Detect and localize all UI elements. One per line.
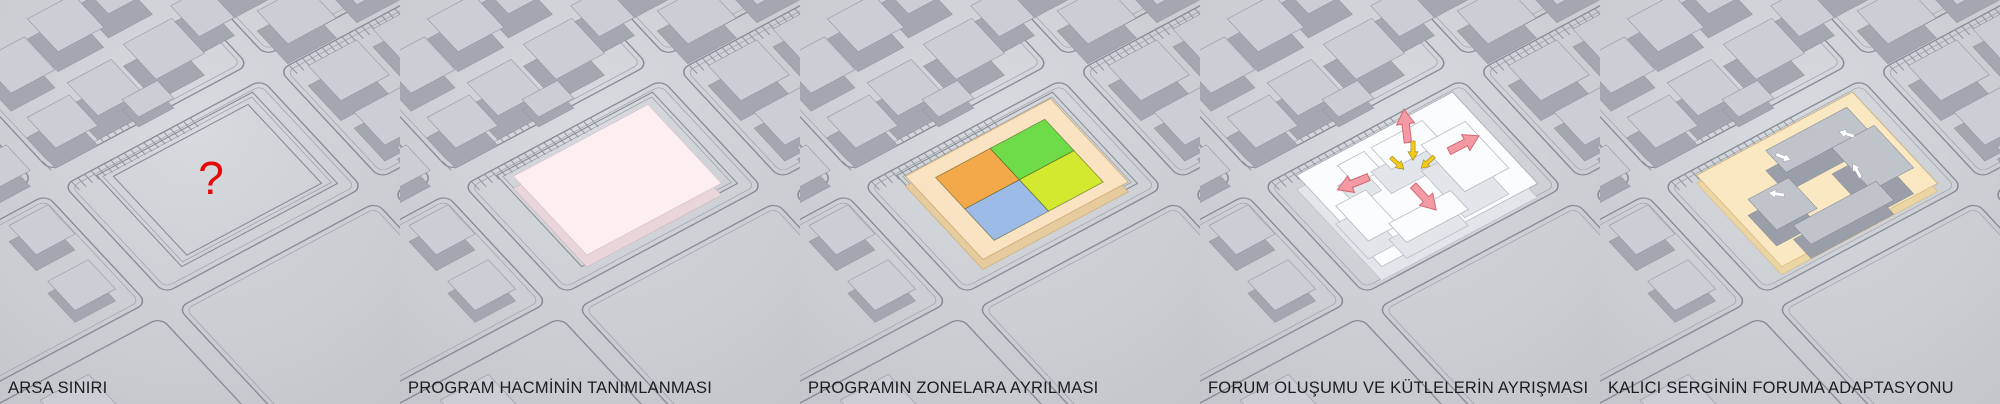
panel-1-scene: ? xyxy=(0,0,400,404)
step-label: KALICI SERGİNİN FORUMA ADAPTASYONU xyxy=(1608,379,1954,397)
concept-diagram-strip: ? ARSA SINIRI PROGRAM HACMİNİN TANIMLANM… xyxy=(0,0,2000,404)
step-panel-site-boundary: ? ARSA SINIRI xyxy=(0,0,400,404)
panel-5-scene xyxy=(1600,0,2000,404)
panel-2-scene xyxy=(400,0,800,404)
step-label: PROGRAMIN ZONELARA AYRILMASI xyxy=(808,379,1098,397)
step-label: ARSA SINIRI xyxy=(8,379,107,397)
step-panel-forum-separation: FORUM OLUŞUMU VE KÜTLELERİN AYRIŞMASI xyxy=(1200,0,1600,404)
step-panel-zoning: PROGRAMIN ZONELARA AYRILMASI xyxy=(800,0,1200,404)
step-panel-exhibition-adaptation: KALICI SERGİNİN FORUMA ADAPTASYONU xyxy=(1600,0,2000,404)
question-mark: ? xyxy=(198,152,224,204)
panel-4-scene xyxy=(1200,0,1600,404)
step-label: FORUM OLUŞUMU VE KÜTLELERİN AYRIŞMASI xyxy=(1208,379,1588,397)
panel-3-scene xyxy=(800,0,1200,404)
step-label: PROGRAM HACMİNİN TANIMLANMASI xyxy=(408,379,712,397)
step-panel-program-volume: PROGRAM HACMİNİN TANIMLANMASI xyxy=(400,0,800,404)
